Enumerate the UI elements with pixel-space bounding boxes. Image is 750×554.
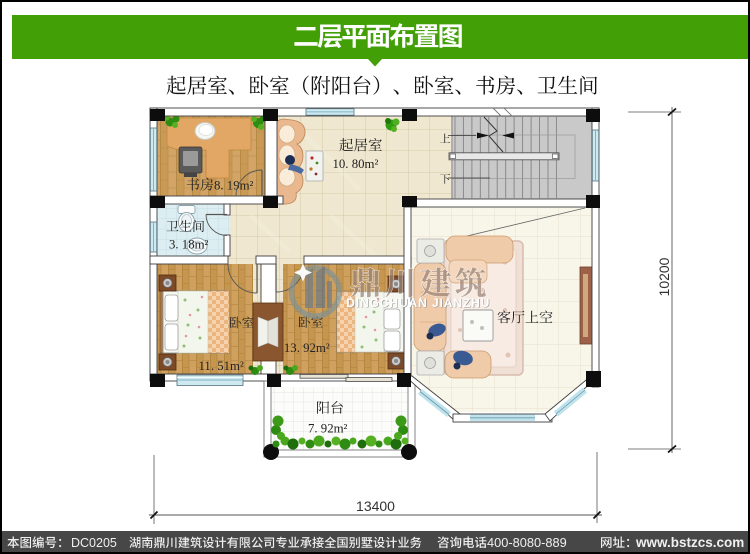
svg-text:3. 18m²: 3. 18m² <box>169 238 209 252</box>
svg-text:11. 51m²: 11. 51m² <box>199 359 244 373</box>
svg-text:8. 19m²: 8. 19m² <box>214 179 254 193</box>
svg-text:13. 92m²: 13. 92m² <box>284 341 330 355</box>
svg-text:DC0205: DC0205 <box>71 536 117 550</box>
svg-text:DINGCHUAN JIANZHU: DINGCHUAN JIANZHU <box>346 296 490 310</box>
svg-text:10. 80m²: 10. 80m² <box>333 157 379 171</box>
svg-text:10200: 10200 <box>656 257 672 296</box>
svg-text:13400: 13400 <box>356 498 395 514</box>
svg-text:www.bstzcs.com: www.bstzcs.com <box>635 535 744 550</box>
svg-text:400-8080-889: 400-8080-889 <box>487 535 567 550</box>
svg-text:7. 92m²: 7. 92m² <box>308 422 348 436</box>
